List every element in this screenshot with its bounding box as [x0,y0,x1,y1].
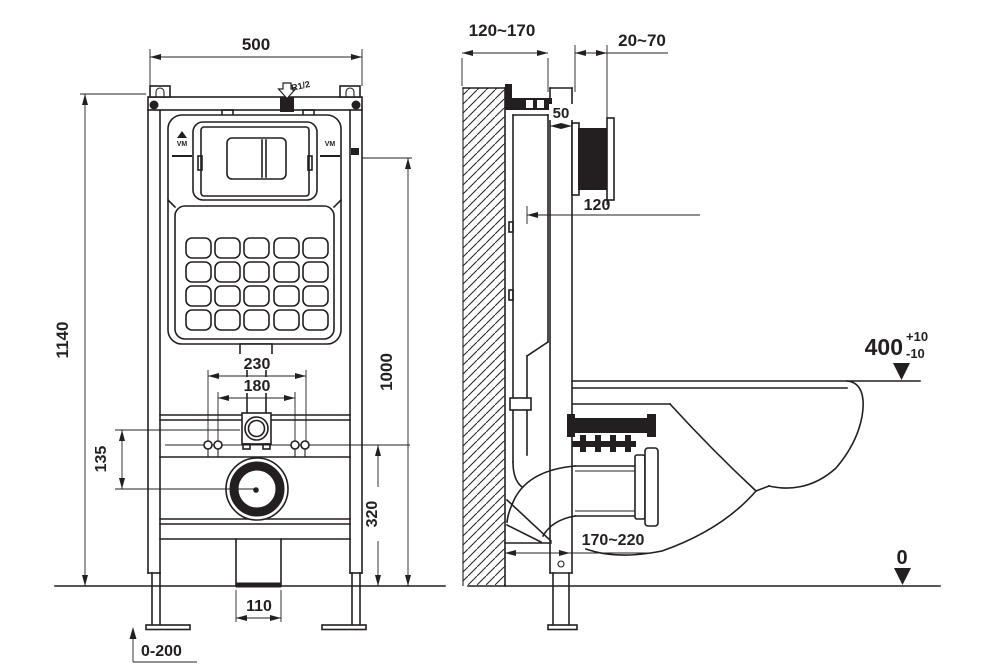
dim-label-plate-center-height: 1000 [377,353,396,391]
plate-mark-right-label: VM [325,141,336,148]
rail-marker-icon [351,148,359,155]
dim-label-fixing-height: 320 [364,501,381,528]
foot-plate-side [548,625,577,630]
plate-recess [193,122,317,200]
toilet-bowl-profile [573,381,920,555]
plate-mark-left-label: VM [177,141,188,148]
level-rim-height: 400 +10 -10 [865,329,928,380]
flange-outer [645,448,658,526]
dim-label-finish-thickness: 20~70 [618,31,666,50]
drain-center-mark-icon [253,487,259,493]
level-marker-icon [893,363,910,380]
technical-drawing-canvas: R1/2 VM [0,0,1000,667]
dim-label-outlet-offset: 170~220 [582,532,645,549]
flush-pipe-bend [513,462,522,487]
level-label-rim-height: 400 [865,334,903,360]
dim-fixing-height: 320 [364,445,387,586]
level-label-rim-tol-minus: -10 [906,346,925,361]
dim-label-fixing-spacing-outer: 230 [244,356,271,373]
dim-profile-depth: 50 [549,104,574,129]
frame-rail-side [505,84,577,630]
dim-leg-adjustment: 0-200 [130,627,198,662]
level-floor: 0 [894,547,911,585]
dim-label-cistern-depth: 120 [584,197,611,214]
water-inlet: R1/2 [279,79,311,112]
dim-label-frame-width: 500 [242,35,270,54]
dim-label-leg-adjustment: 0-200 [141,643,182,660]
level-marker-icon [894,568,911,585]
flange-inner [635,455,645,519]
foot-plate-left [146,625,190,630]
dim-drain-width: 110 [236,590,281,622]
dim-wall-to-front: 120~170 [462,21,548,92]
plate-side-profile [607,118,614,200]
dim-finish-thickness: 20~70 [575,31,668,92]
level-label-floor: 0 [896,547,907,569]
dim-label-drain-width: 110 [246,598,272,615]
front-view: R1/2 VM [53,35,445,662]
level-label-rim-tol-plus: +10 [906,329,928,344]
dim-label-profile-depth: 50 [553,105,570,122]
pipe-collar [510,398,531,410]
dim-label-frame-height: 1140 [53,322,72,359]
frame-top-bar [148,97,362,110]
dim-frame-width: 500 [150,35,362,86]
foot-plate-right [322,625,366,630]
dim-label-wall-to-front: 120~170 [469,21,536,40]
bolt-hole-icon [301,441,309,449]
leg-hole-icon [558,561,564,567]
frame-bolt-right-icon [352,101,361,110]
bolt-hole-icon [204,441,212,449]
fixing-bolt-holes [165,441,410,457]
installation-drawing: R1/2 VM [0,0,1000,667]
cistern-side [509,115,548,487]
flush-plate-side [572,45,614,205]
inlet-thread-label: R1/2 [290,79,311,93]
outlet-pipe [575,448,658,526]
dim-label-flush-to-drain: 135 [93,446,110,473]
wall-hatch [463,88,505,585]
dim-cistern-depth: 120 [527,197,700,224]
wall-section [463,88,505,586]
side-view: 120~170 20~70 50 120 [462,21,940,630]
dim-label-fixing-spacing-inner: 180 [244,378,271,395]
mounting-studs [567,414,656,452]
dim-frame-height: 1140 [53,94,146,586]
bolt-hole-icon [214,441,222,449]
bolt-hole-icon [291,441,299,449]
actuator-box [578,128,607,190]
drain-stub [236,539,281,586]
frame-bolt-left-icon [150,101,159,110]
